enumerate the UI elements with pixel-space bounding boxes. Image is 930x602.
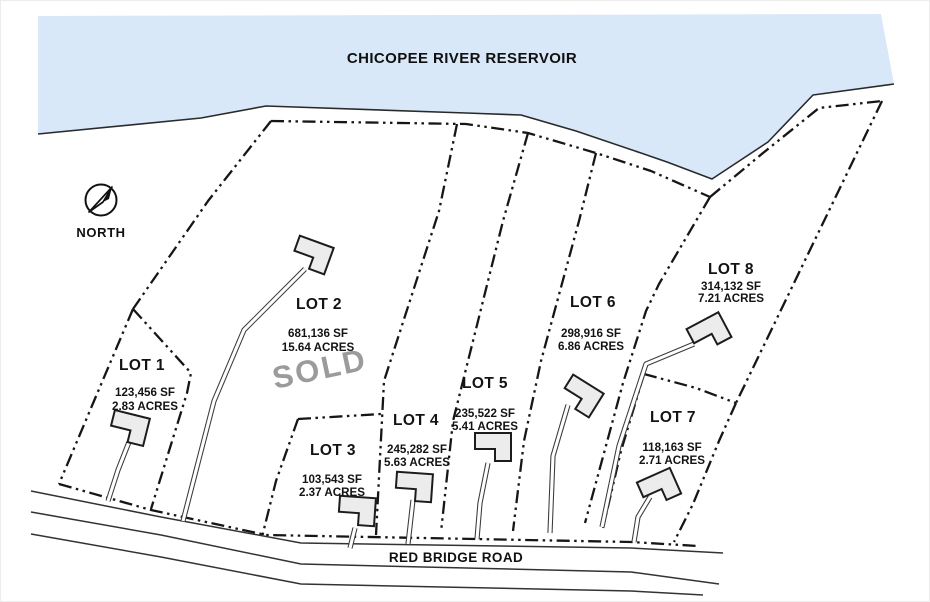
lot-area-acres: 2.83 ACRES xyxy=(112,400,178,413)
lot-area-sf: 118,163 SF xyxy=(642,441,701,454)
lot-1-label: LOT 1 123,456 SF 2.83 ACRES xyxy=(112,357,178,413)
lot-area-acres: 5.41 ACRES xyxy=(452,420,518,433)
lot4-house-icon xyxy=(395,472,433,502)
plat-map: NORTH CHICOPEE RIVER RESERVOIR RED BRIDG… xyxy=(0,0,930,602)
lot-area-sf: 235,522 SF xyxy=(455,407,515,420)
lot1-house-icon xyxy=(108,410,150,446)
lot-name: LOT 7 xyxy=(650,409,696,426)
lot5-house-icon xyxy=(475,433,511,461)
lot-name: LOT 8 xyxy=(708,261,754,278)
lot-name: LOT 2 xyxy=(296,296,342,313)
lot-8-label: LOT 8 314,132 SF 7.21 ACRES xyxy=(698,261,764,305)
lot-name: LOT 5 xyxy=(462,375,508,392)
lot7-north-boundary xyxy=(644,374,736,403)
lot-area-acres: 6.86 ACRES xyxy=(558,340,624,353)
lot-3-label: LOT 3 103,543 SF 2.37 ACRES xyxy=(299,442,365,499)
lot-name: LOT 3 xyxy=(310,442,356,459)
lot-area-acres: 2.37 ACRES xyxy=(299,486,365,499)
lot-area-sf: 123,456 SF xyxy=(115,386,175,399)
lot-2-label: LOT 2 681,136 SF 15.64 ACRES SOLD xyxy=(269,296,370,396)
lot3-north-boundary xyxy=(298,414,381,419)
road-shoulder-edge xyxy=(31,534,703,595)
lot6-lot8-boundary xyxy=(585,197,710,523)
lot-area-acres: 7.21 ACRES xyxy=(698,292,764,305)
lot2-west-boundary xyxy=(133,121,271,309)
reservoir-water xyxy=(38,14,894,179)
reservoir-title: CHICOPEE RIVER RESERVOIR xyxy=(347,50,577,67)
lot2-house-icon xyxy=(290,236,333,275)
lot-6-label: LOT 6 298,916 SF 6.86 ACRES xyxy=(558,294,624,353)
lot-area-sf: 103,543 SF xyxy=(302,473,362,486)
lot-area-sf: 245,282 SF xyxy=(387,443,447,456)
lot7-house-icon xyxy=(637,468,681,508)
lot-area-sf: 681,136 SF xyxy=(288,327,348,340)
lot8-house-icon xyxy=(687,312,732,354)
lot-5-label: LOT 5 235,522 SF 5.41 ACRES xyxy=(452,375,518,433)
lot-name: LOT 4 xyxy=(393,412,439,429)
lot2-driveway xyxy=(183,269,305,521)
lot-4-label: LOT 4 245,282 SF 5.63 ACRES xyxy=(384,412,450,469)
lot3-west-boundary xyxy=(262,419,298,537)
lot-7-label: LOT 7 118,163 SF 2.71 ACRES xyxy=(639,409,705,467)
north-label: NORTH xyxy=(76,225,125,240)
lot3-house-icon xyxy=(338,496,376,526)
lot-area-acres: 5.63 ACRES xyxy=(384,456,450,469)
lot-area-sf: 298,916 SF xyxy=(561,327,621,340)
road-label: RED BRIDGE ROAD xyxy=(389,550,523,565)
lot-name: LOT 6 xyxy=(570,294,616,311)
plat-map-drawing: NORTH CHICOPEE RIVER RESERVOIR RED BRIDG… xyxy=(1,1,930,602)
lot-name: LOT 1 xyxy=(119,357,165,374)
north-compass: NORTH xyxy=(76,185,125,241)
lot-area-acres: 2.71 ACRES xyxy=(639,454,705,467)
